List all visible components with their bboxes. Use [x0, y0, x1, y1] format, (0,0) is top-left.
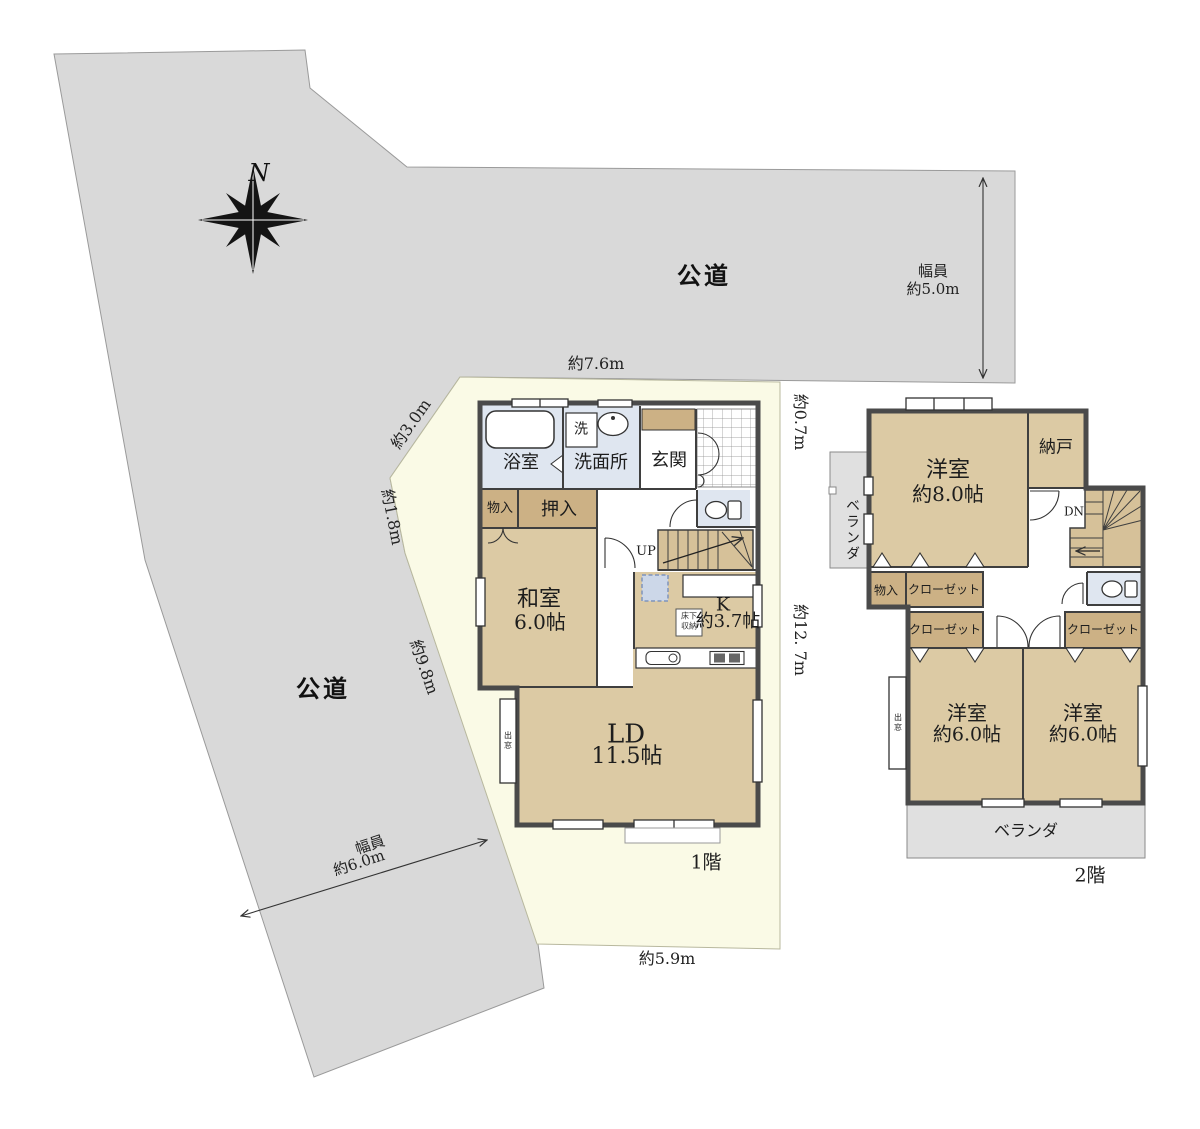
terrace-step: [625, 828, 720, 843]
road-top-width-value: 約5.0m: [906, 281, 959, 298]
entrance-cabinet: [642, 409, 695, 430]
road-top-width-label: 幅員: [918, 263, 948, 280]
veranda-side-label: ベランダ: [842, 498, 862, 562]
bedroom-8-size: 約8.0帖: [912, 483, 984, 505]
road-top-label: 公道: [677, 263, 731, 289]
dim-right-lower-label: 約12. 7m: [791, 604, 809, 676]
refrigerator-space: [642, 575, 668, 601]
stairs-up-label: UP: [636, 545, 656, 559]
bedroom-6-left-label: 洋室: [947, 702, 987, 724]
bedroom-6-right-size: 約6.0帖: [1049, 725, 1117, 746]
toilet-icon-2f: [1102, 581, 1122, 597]
toilet-icon-1f: [706, 502, 727, 519]
laundry-label: 洗: [574, 422, 588, 437]
stairs-down-label: DN: [1064, 505, 1084, 518]
washbasin-icon: [598, 413, 628, 436]
closet-c-label: クローゼット: [1067, 623, 1139, 636]
bay-window-1f-label: 出窓: [503, 731, 514, 751]
kitchen-size: 約3.7帖: [696, 612, 761, 632]
road-left-label: 公道: [296, 676, 350, 702]
floor-plan-canvas: N 公道 公道 幅員 約5.0m 幅員 約6.0m 約7.6m 約3.0m 約1…: [0, 0, 1200, 1129]
entrance-porch-tiles: [697, 409, 758, 487]
storage-2f-label: 物入: [874, 584, 898, 597]
bedroom-6-left-size: 約6.0帖: [933, 725, 1001, 746]
veranda-bottom-label: ベランダ: [994, 822, 1058, 840]
bay-window-2f-label: 出窓: [893, 713, 904, 733]
floor2-label: 2階: [1074, 866, 1105, 887]
japanese-room-label: 和室: [517, 588, 561, 612]
bathroom-label: 浴室: [503, 453, 539, 473]
underfloor-storage-label-2: 収納: [681, 623, 697, 632]
bathtub-icon: [486, 411, 554, 448]
oshiire-label: 押入: [541, 500, 577, 520]
dim-top-label: 約7.6m: [568, 355, 625, 373]
bedroom-6-right-label: 洋室: [1063, 702, 1103, 724]
japanese-room-size: 6.0帖: [514, 611, 566, 633]
site-plan-drawing: [0, 0, 1200, 1129]
washroom-label: 洗面所: [574, 453, 628, 473]
stairs-1f: [658, 530, 753, 570]
floor1-label: 1階: [690, 853, 721, 874]
closet-a-label: クローゼット: [908, 583, 980, 596]
living-dining-size: 11.5帖: [592, 745, 663, 769]
storage-1f-label: 物入: [487, 502, 513, 516]
closet-b-label: クローゼット: [909, 623, 981, 636]
underfloor-storage-label-1: 床下: [681, 613, 697, 622]
sink-drain-icon: [669, 654, 677, 662]
storeroom-label: 納戸: [1039, 439, 1073, 458]
bedroom-8-label: 洋室: [926, 459, 970, 483]
dim-bottom-label: 約5.9m: [639, 950, 696, 968]
entrance-label: 玄関: [651, 451, 687, 471]
north-label: N: [249, 160, 270, 186]
dim-right-upper-label: 約0.7m: [791, 394, 809, 451]
